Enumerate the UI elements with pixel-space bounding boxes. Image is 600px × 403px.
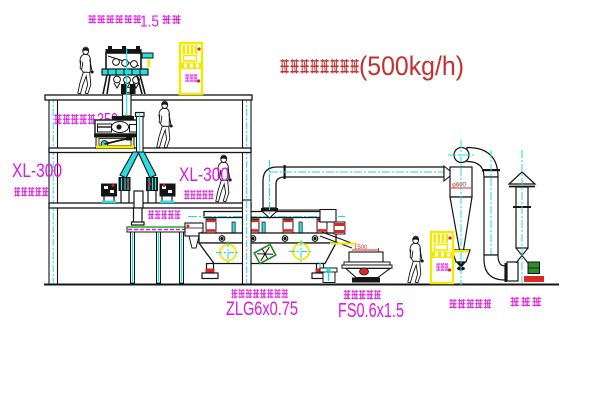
svg-text:FS0.6x1.5: FS0.6x1.5 — [338, 300, 404, 322]
svg-text:1500: 1500 — [354, 245, 368, 251]
svg-text:1.5: 1.5 — [140, 14, 159, 31]
svg-text:XL-300: XL-300 — [12, 161, 62, 182]
svg-text:φ600: φ600 — [452, 183, 467, 189]
svg-text:ZLG6x0.75: ZLG6x0.75 — [226, 299, 298, 320]
svg-text:(500kg/h): (500kg/h) — [359, 51, 464, 81]
svg-text:XL-300: XL-300 — [179, 165, 229, 186]
